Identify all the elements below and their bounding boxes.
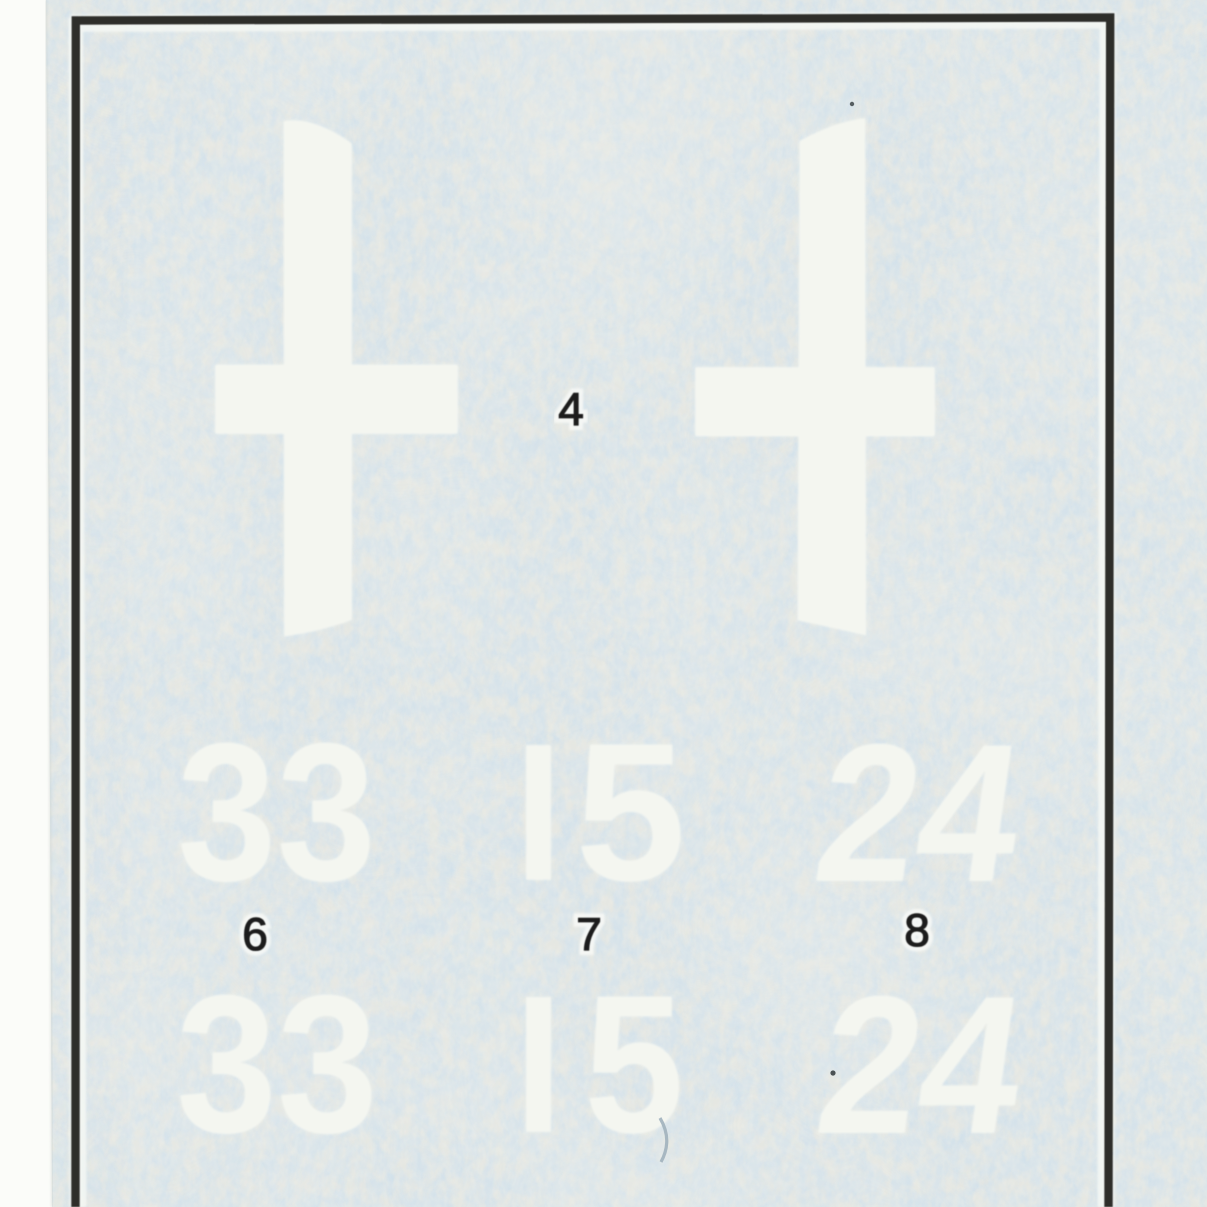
svg-text:33: 33 — [177, 702, 376, 922]
svg-text:8: 8 — [904, 904, 930, 956]
svg-text:4: 4 — [558, 383, 584, 435]
svg-text:7: 7 — [576, 908, 602, 960]
svg-text:5: 5 — [575, 702, 686, 922]
svg-text:33: 33 — [176, 954, 378, 1174]
svg-text:6: 6 — [242, 908, 268, 960]
svg-text:5: 5 — [584, 954, 684, 1174]
svg-text:24: 24 — [806, 955, 1037, 1175]
svg-text:24: 24 — [804, 703, 1035, 923]
